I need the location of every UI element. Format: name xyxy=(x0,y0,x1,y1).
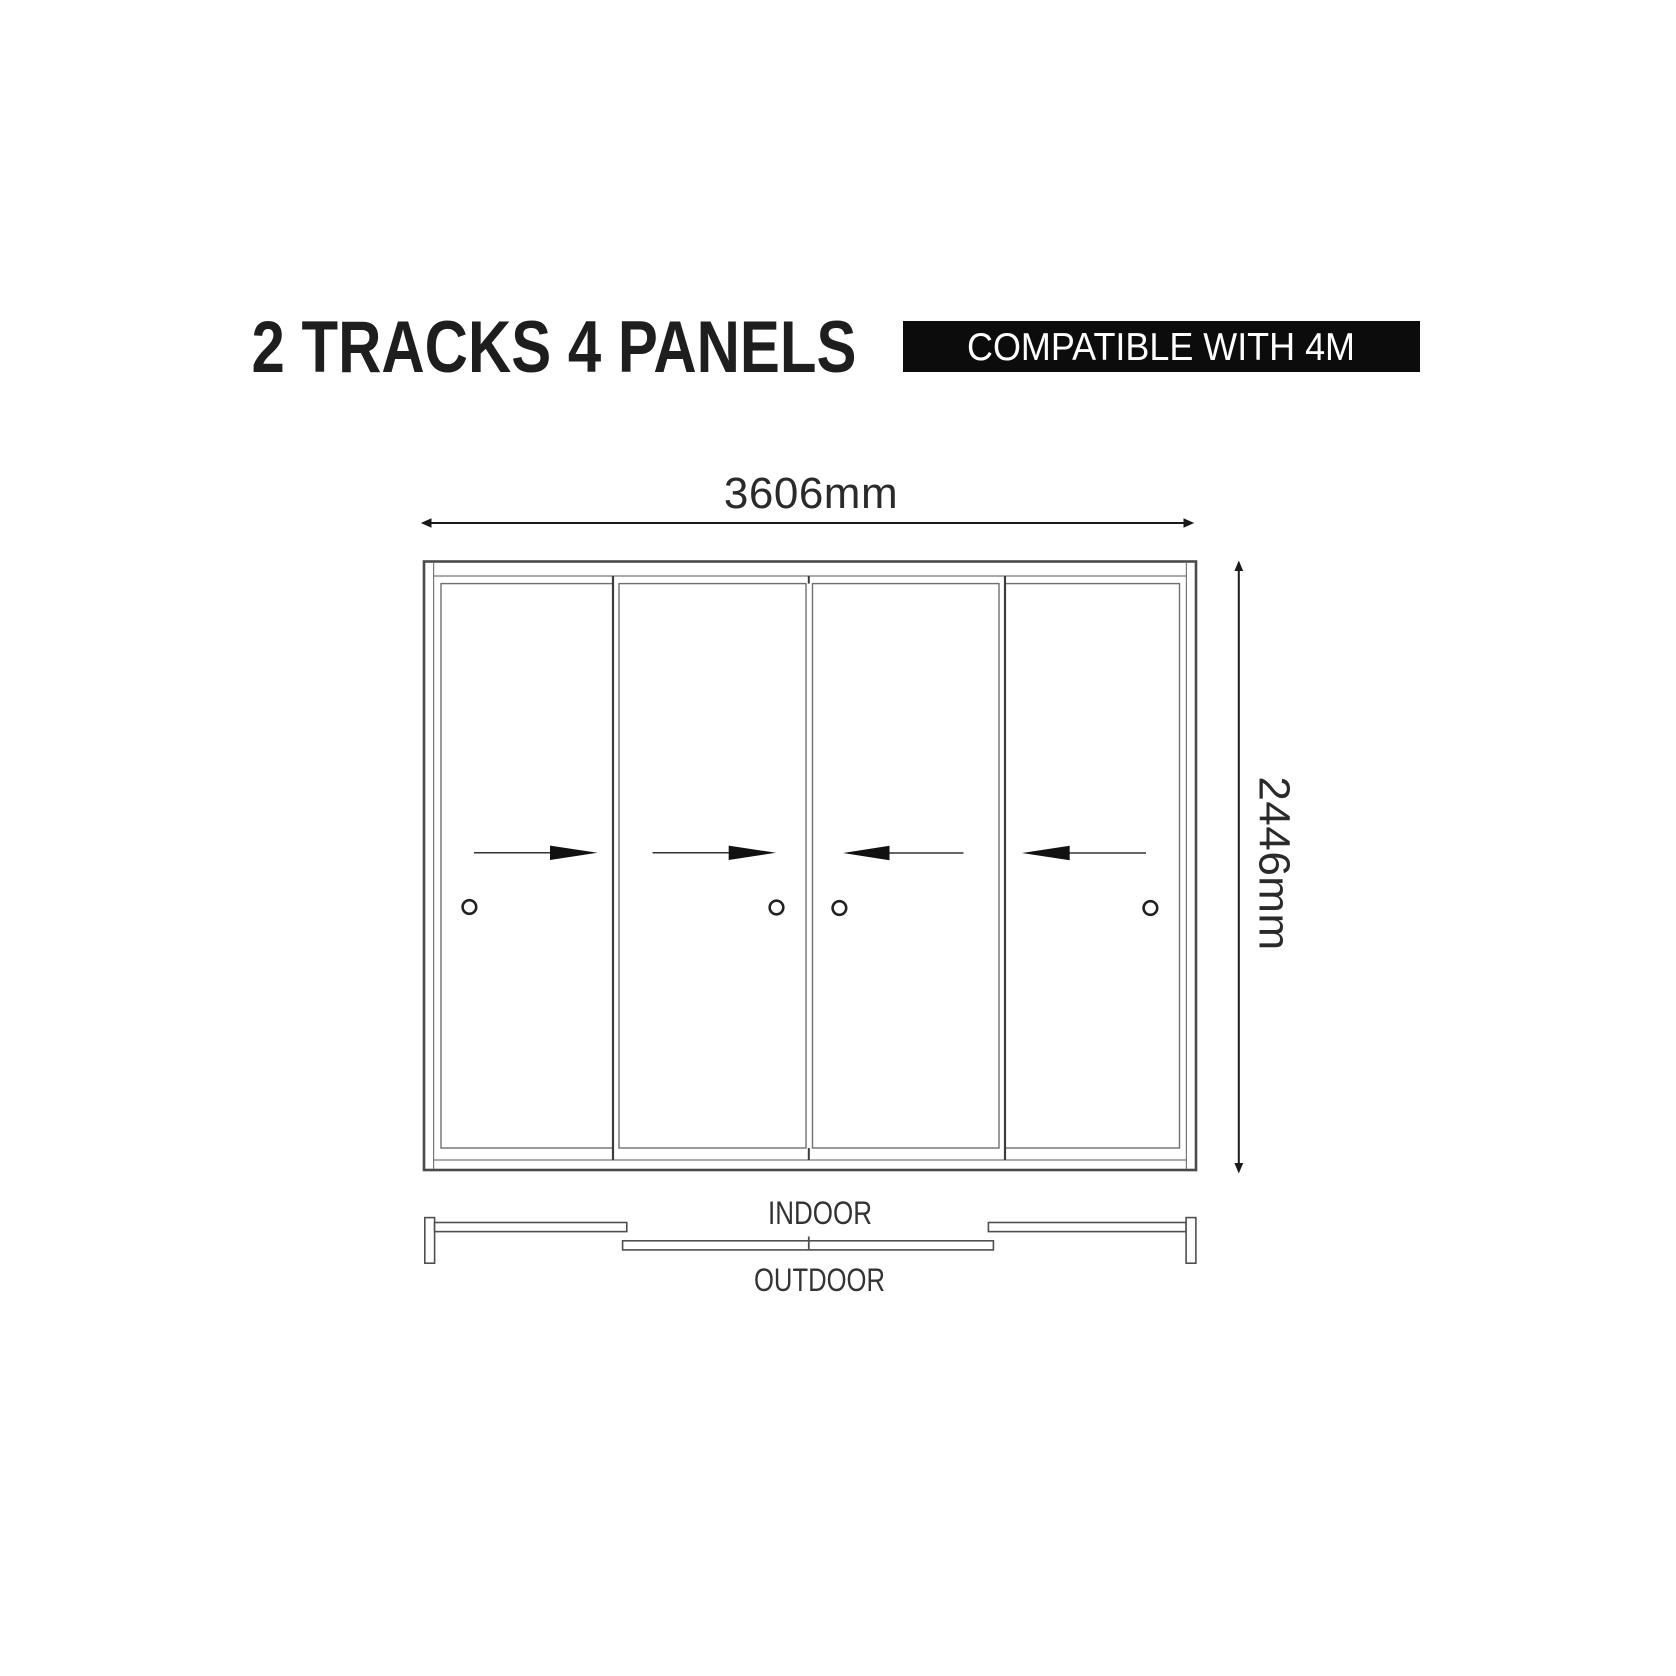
svg-text:2446mm: 2446mm xyxy=(1250,776,1299,950)
svg-text:COMPATIBLE WITH 4M: COMPATIBLE WITH 4M xyxy=(967,326,1355,369)
svg-text:INDOOR: INDOOR xyxy=(768,1195,872,1231)
svg-text:2 TRACKS 4 PANELS: 2 TRACKS 4 PANELS xyxy=(252,307,857,388)
svg-text:OUTDOOR: OUTDOOR xyxy=(754,1262,885,1298)
svg-text:3606mm: 3606mm xyxy=(724,469,898,518)
